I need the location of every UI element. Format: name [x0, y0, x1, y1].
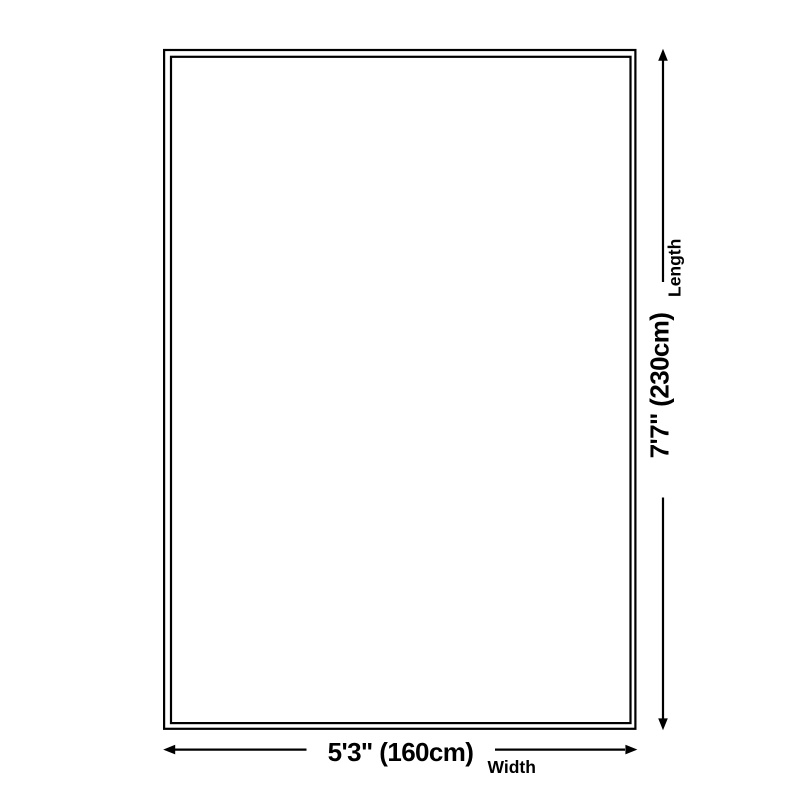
svg-text:Length: Length: [665, 239, 685, 297]
svg-text:5'3" (160cm): 5'3" (160cm): [328, 737, 474, 767]
svg-text:7'7" (230cm): 7'7" (230cm): [644, 313, 674, 459]
svg-text:Width: Width: [488, 757, 536, 777]
